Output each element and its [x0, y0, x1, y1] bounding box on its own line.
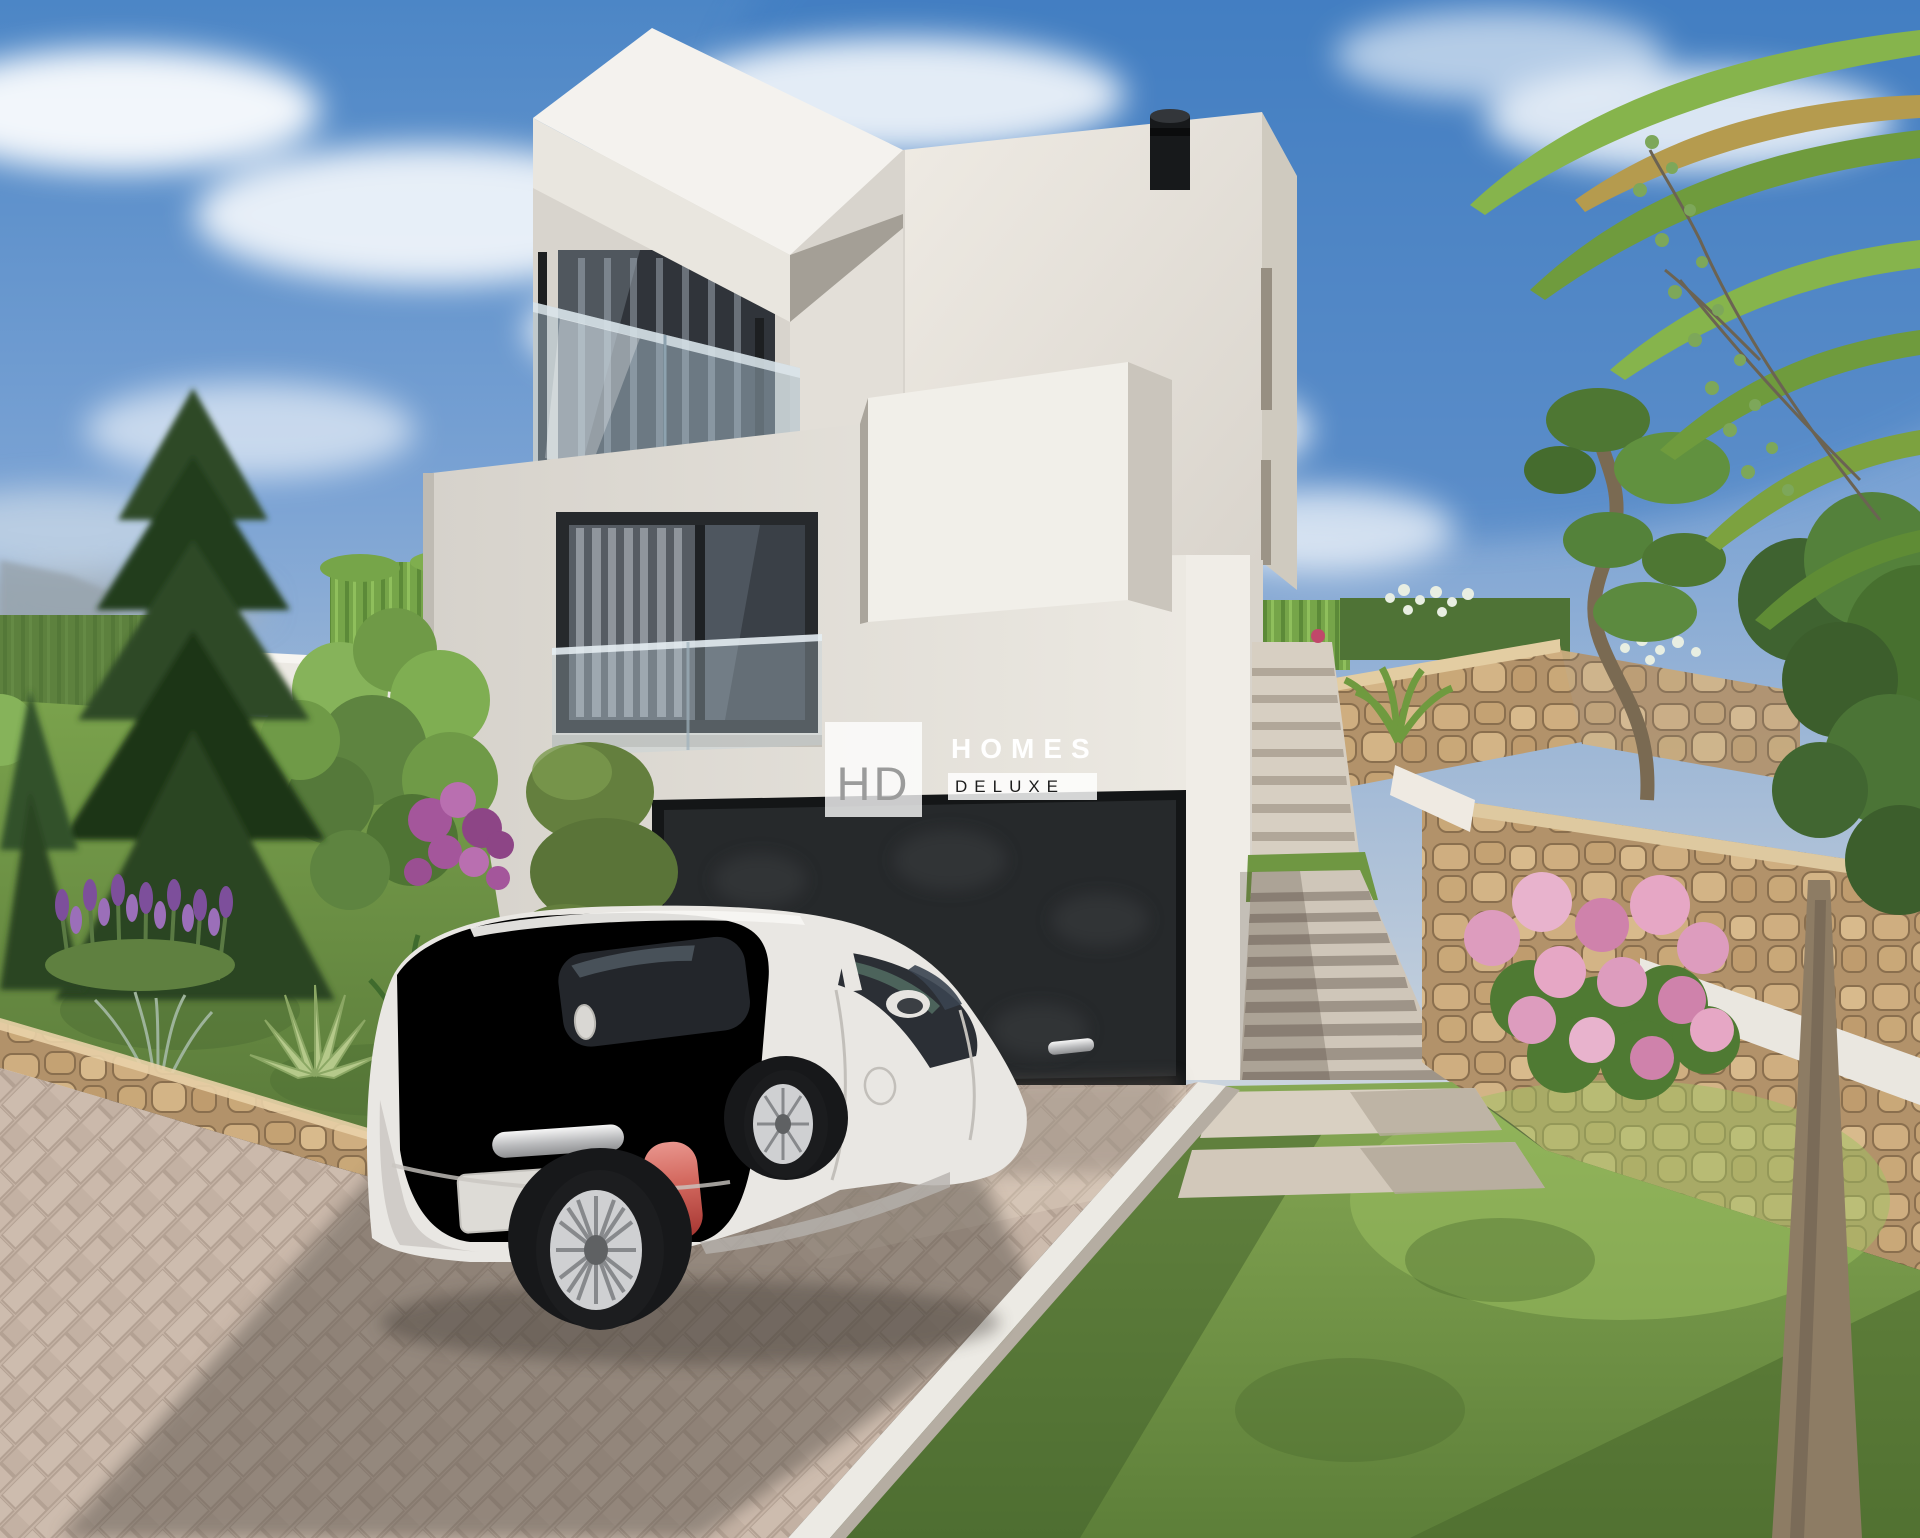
- car-front-wheel: [724, 1056, 848, 1180]
- projecting-box-front: [868, 362, 1128, 622]
- car-ground-shadow: [380, 1280, 1000, 1364]
- scene-svg: [0, 0, 1920, 1538]
- projecting-box-side: [1128, 362, 1172, 612]
- watermark-brand-homes: HOMES: [951, 733, 1111, 765]
- watermark-initials: HD: [837, 760, 911, 807]
- chimney-pipe: [1150, 109, 1190, 190]
- watermark-brand-deluxe: DELUXE: [948, 773, 1097, 800]
- stairs-top-flower: [1311, 629, 1325, 643]
- slot-window-upper: [1261, 268, 1272, 410]
- watermark-logo-square: HD: [825, 722, 922, 817]
- render-canvas: HD HOMES DELUXE: [0, 0, 1920, 1538]
- projecting-box-shadowline: [860, 398, 868, 624]
- slot-window-lower: [1261, 460, 1271, 565]
- juliet-glass-balustrade: [552, 634, 822, 756]
